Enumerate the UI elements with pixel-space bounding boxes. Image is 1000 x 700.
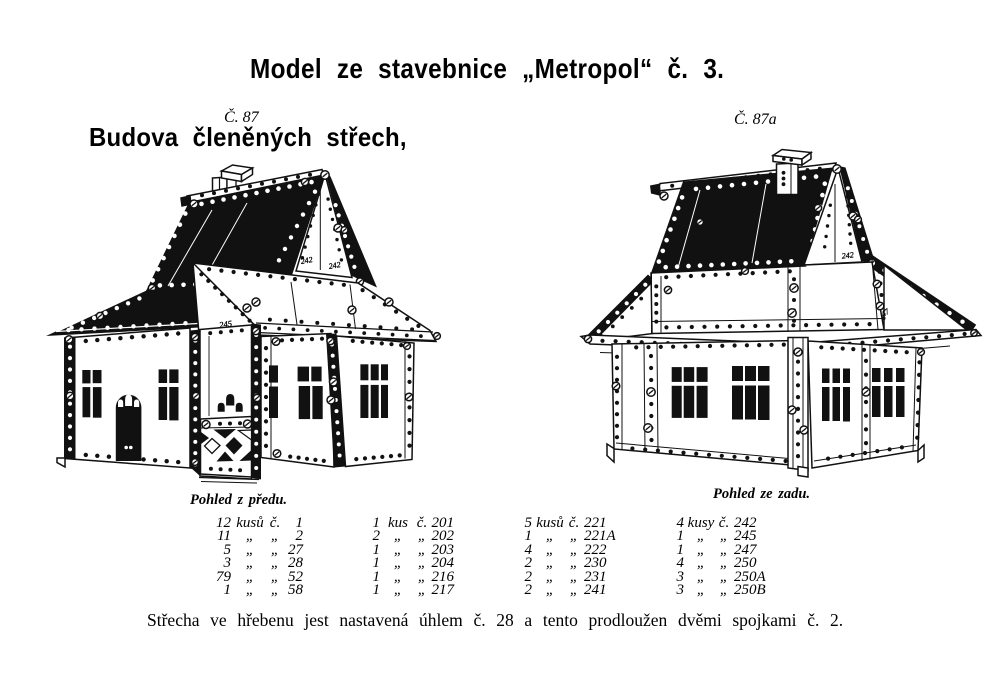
svg-text:242: 242 — [841, 250, 854, 260]
